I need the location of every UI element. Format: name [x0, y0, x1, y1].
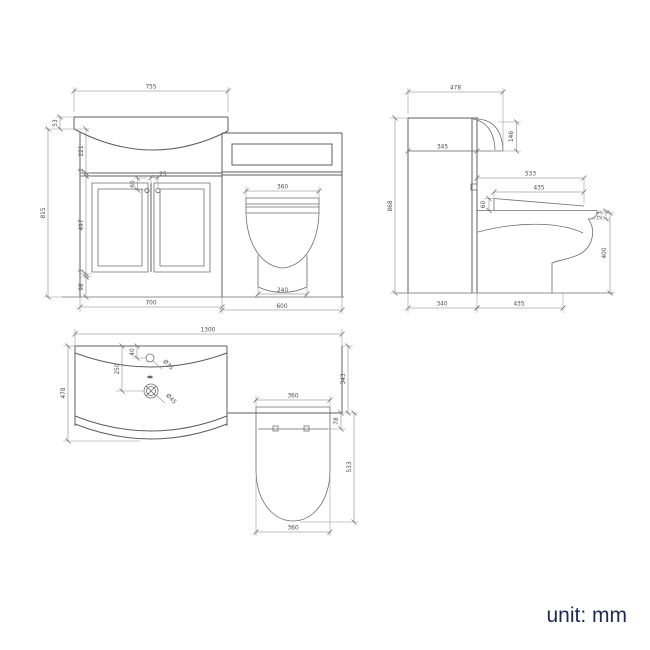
label-rim-drop: 23: [598, 211, 604, 219]
plan-vanity-outline: [75, 346, 227, 439]
side-view: 478 868 345 146 533 435 60 23 400 340 43…: [388, 86, 614, 314]
front-view: 755 53 221 2 815 497 3 98 60 25 360 240 …: [41, 85, 344, 315]
plan-wc-unit-outline: [227, 346, 342, 413]
label-wc-width: 600: [276, 304, 287, 310]
label-seat-rise: 60: [481, 201, 487, 209]
label-handle-drop: 60: [131, 180, 137, 188]
right-door-knob: [156, 188, 160, 192]
label-plan-seat-width: 360: [287, 394, 298, 400]
label-unit-height: 815: [41, 207, 47, 218]
label-rim-height: 53: [53, 119, 59, 127]
label-plan-unit-depth: 343: [341, 373, 347, 384]
label-plan-pan-width: 360: [287, 526, 298, 532]
label-handle-offset: 25: [159, 172, 167, 178]
waste-cross: [146, 386, 156, 396]
label-plan-depth: 478: [61, 387, 67, 398]
basin-outline: [74, 117, 228, 150]
label-pan-height: 400: [602, 247, 608, 258]
label-vanity-width: 700: [145, 301, 156, 307]
label-side-unit-depth: 340: [436, 302, 447, 308]
toilet-front-outline: [246, 198, 319, 293]
label-tap-setback: 40: [130, 348, 136, 356]
label-plan-overall-width: 1300: [201, 328, 216, 334]
plan-seat-outline: [256, 407, 330, 521]
side-basin-profile: [408, 119, 503, 151]
side-seat-pan-profile: [477, 199, 597, 294]
overflow-slot: [147, 376, 153, 379]
wc-unit-outline: [222, 133, 342, 297]
label-waste-hole: Ø45: [164, 392, 178, 406]
label-pan-reach: 435: [513, 302, 524, 308]
left-door: [92, 183, 148, 272]
label-seat-reach: 533: [525, 172, 536, 178]
right-hinge: [304, 426, 309, 431]
unit-label: unit: mm: [546, 604, 627, 628]
label-basin-width: 755: [145, 85, 156, 91]
label-door-height: 497: [79, 219, 85, 230]
label-waste-setback: 250: [115, 363, 121, 374]
label-plinth: 98: [79, 283, 85, 291]
label-pan-projection: 533: [347, 461, 353, 472]
label-worktop: 2: [79, 168, 85, 172]
side-extension-lines: [390, 88, 614, 313]
label-pedestal-width: 240: [277, 288, 288, 294]
label-gap: 3: [79, 269, 85, 273]
label-tap-hole: Ø35: [161, 358, 175, 372]
label-basin-front-height: 146: [509, 131, 515, 142]
plan-view: 1300 478 40 250 Ø35 Ø45 360 343 78 533 3…: [61, 328, 358, 537]
label-side-depth: 478: [450, 86, 461, 92]
right-door: [154, 183, 210, 272]
technical-drawing-canvas: 755 53 221 2 815 497 3 98 60 25 360 240 …: [0, 0, 650, 650]
label-overall-height: 868: [388, 200, 394, 211]
label-internal-depth: 345: [437, 145, 448, 151]
front-extension-lines: [44, 87, 342, 314]
left-door-knob: [145, 188, 149, 192]
label-hinge-offset: 78: [334, 417, 340, 425]
drawing-svg: 755 53 221 2 815 497 3 98 60 25 360 240 …: [0, 0, 650, 650]
tap-hole: [146, 354, 154, 362]
plan-extension-lines: [63, 329, 358, 536]
label-basin-height: 221: [79, 145, 85, 156]
label-seat-width: 360: [277, 185, 288, 191]
label-seat-depth: 435: [533, 186, 544, 192]
left-hinge: [273, 426, 278, 431]
